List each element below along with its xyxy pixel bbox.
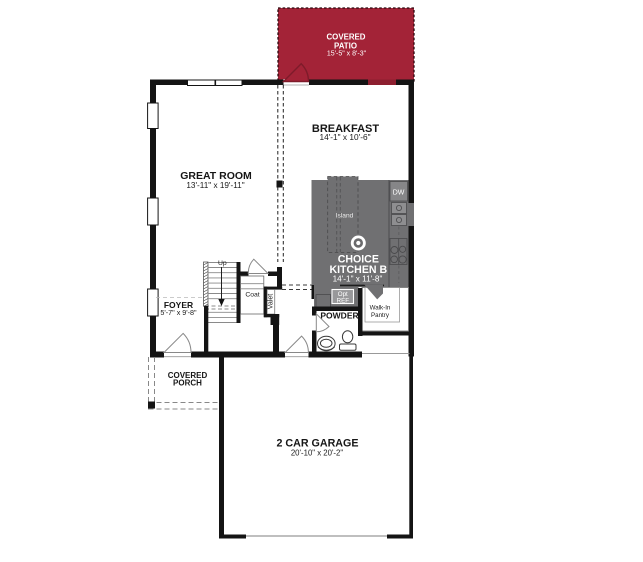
svg-text:5'-7" x 9'-8": 5'-7" x 9'-8" <box>160 308 197 317</box>
svg-text:Island: Island <box>336 213 354 220</box>
svg-text:Walk-In: Walk-In <box>370 305 391 312</box>
svg-text:Up: Up <box>218 260 227 267</box>
svg-text:Pantry: Pantry <box>371 312 390 319</box>
svg-text:Coat: Coat <box>245 292 259 299</box>
svg-text:PATIO: PATIO <box>334 42 357 51</box>
svg-text:REF: REF <box>337 298 350 305</box>
svg-text:Valet: Valet <box>267 294 274 309</box>
svg-text:COVERED: COVERED <box>326 32 365 41</box>
svg-text:PORCH: PORCH <box>173 379 202 388</box>
svg-text:POWDER: POWDER <box>320 310 358 320</box>
svg-text:14'-1" x 11'-8": 14'-1" x 11'-8" <box>333 275 383 284</box>
svg-text:2 CAR GARAGE: 2 CAR GARAGE <box>277 437 359 449</box>
svg-text:13'-11" x 19'-11": 13'-11" x 19'-11" <box>186 181 244 190</box>
svg-text:20'-10" x 20'-2": 20'-10" x 20'-2" <box>291 449 344 458</box>
svg-text:15'-5" x 8'-3": 15'-5" x 8'-3" <box>327 51 367 58</box>
svg-text:DW: DW <box>393 190 405 197</box>
svg-text:14'-1" x 10'-6": 14'-1" x 10'-6" <box>319 132 370 142</box>
